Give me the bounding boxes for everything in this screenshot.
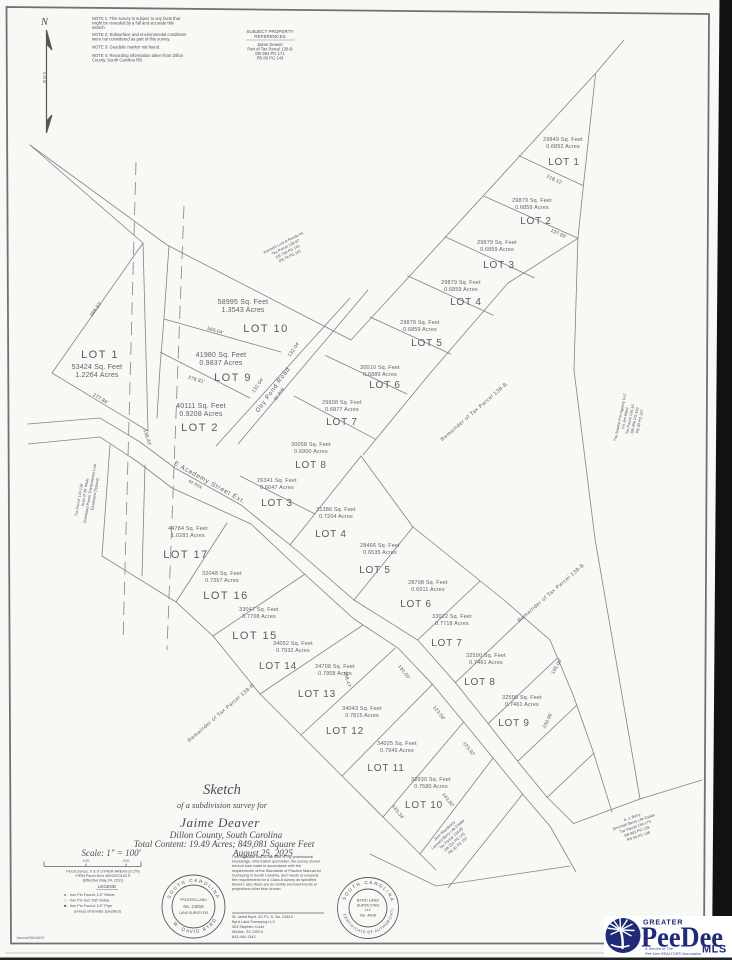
svg-text:33047 Sq. Feet: 33047 Sq. Feet <box>239 607 279 613</box>
svg-text:LOT 17: LOT 17 <box>163 549 209 561</box>
svg-text:LOT 11: LOT 11 <box>367 763 404 774</box>
svg-text:S 05 W: S 05 W <box>42 72 46 84</box>
svg-text:0.6859 Acres: 0.6859 Acres <box>480 247 514 253</box>
svg-text:LOT 4: LOT 4 <box>450 297 482 308</box>
svg-text:0.7718 Acres: 0.7718 Acres <box>435 621 469 627</box>
svg-text:0.6859 Acres: 0.6859 Acres <box>403 327 437 333</box>
svg-text:53424 Sq. Feet: 53424 Sq. Feet <box>72 364 123 371</box>
svg-text:LLC: LLC <box>365 908 372 912</box>
svg-text:30058 Sq. Feet: 30058 Sq. Feet <box>291 442 331 448</box>
svg-text:303 Stephen Court: 303 Stephen Court <box>232 925 265 929</box>
svg-text:LEGEND: LEGEND <box>98 884 116 889</box>
svg-text:0.9837 Acres: 0.9837 Acres <box>199 360 243 367</box>
svg-text:32500 Sq. Feet: 32500 Sq. Feet <box>466 653 506 659</box>
svg-text:200': 200' <box>122 859 129 863</box>
svg-text:29879 Sq. Feet: 29879 Sq. Feet <box>512 198 552 204</box>
svg-text:0.7932 Acres: 0.7932 Acres <box>276 648 310 654</box>
svg-text:0.6900 Acres: 0.6900 Acres <box>294 449 328 455</box>
svg-text:I hereby state that to the bes: I hereby state that to the best of my pr… <box>232 855 313 859</box>
svg-text:0.6611 Acres: 0.6611 Acres <box>411 587 445 593</box>
svg-text:LOT 1: LOT 1 <box>81 349 119 361</box>
svg-text:40111 Sq. Feet: 40111 Sq. Feet <box>176 403 226 410</box>
svg-text:29908 Sq. Feet: 29908 Sq. Feet <box>322 400 362 406</box>
svg-text:28466 Sq. Feet: 28466 Sq. Feet <box>360 543 400 549</box>
svg-text:Pee Dee REALTOR® Association: Pee Dee REALTOR® Association <box>645 952 702 956</box>
svg-text:32048 Sq. Feet: 32048 Sq. Feet <box>202 571 242 577</box>
svg-text:A Service of The: A Service of The <box>644 947 673 951</box>
svg-text:hereon was made in accordance: hereon was made in accordance with the <box>232 864 301 868</box>
svg-text:LOT 3: LOT 3 <box>483 260 515 271</box>
svg-text:■ - Iron Pin Found: 1/2": ■ - Iron Pin Found: 1/2" Pipe <box>64 904 112 908</box>
svg-text:knowledge, information and bel: knowledge, information and belief, the s… <box>232 860 320 864</box>
svg-text:LOT 5: LOT 5 <box>411 338 443 349</box>
svg-text:PROFESS-LAND: PROFESS-LAND <box>180 898 207 902</box>
svg-text:Sketch: Sketch <box>203 782 241 798</box>
svg-text:LOT 13: LOT 13 <box>298 689 336 700</box>
svg-text:LOT 12: LOT 12 <box>326 726 364 737</box>
svg-text:Mullins, SC 29574: Mullins, SC 29574 <box>232 930 263 934</box>
svg-text:30010 Sq. Feet: 30010 Sq. Feet <box>360 365 400 371</box>
svg-text:1.3543 Acres: 1.3543 Acres <box>221 307 265 314</box>
svg-text:LOT 1: LOT 1 <box>548 157 580 168</box>
svg-text:PB 80 PG 143: PB 80 PG 143 <box>257 56 284 61</box>
svg-text:NOTE 3: Geodetic marker not f: NOTE 3: Geodetic marker not found. <box>92 45 160 50</box>
svg-text:0.6852 Acres: 0.6852 Acres <box>546 144 580 150</box>
svg-text:Flood Zones: X & X OTHER AREAS: Flood Zones: X & X OTHER AREAS (0.2%) <box>66 870 140 874</box>
svg-text:Jaime Deaver: Jaime Deaver <box>180 815 260 830</box>
svg-text:LOT 5: LOT 5 <box>359 565 391 576</box>
svg-text:31386 Sq. Feet: 31386 Sq. Feet <box>316 507 356 513</box>
svg-text:of a subdivision survey for: of a subdivision survey for <box>177 800 268 810</box>
svg-text:MLS: MLS <box>702 944 727 956</box>
svg-text:0.6889 Acres: 0.6889 Acres <box>363 372 397 378</box>
svg-text:LOT 6: LOT 6 <box>369 380 401 391</box>
svg-text:29879 Sq. Feet: 29879 Sq. Feet <box>477 240 517 246</box>
svg-text:32930 Sq. Feet: 32930 Sq. Feet <box>411 777 451 783</box>
svg-text:32500 Sq. Feet: 32500 Sq. Feet <box>502 695 542 701</box>
svg-text:29849 Sq. Feet: 29849 Sq. Feet <box>543 137 583 143</box>
svg-text:34708 Sq. Feet: 34708 Sq. Feet <box>315 664 355 670</box>
svg-text:0.6047 Acres: 0.6047 Acres <box>260 485 294 491</box>
svg-text:LOT 10: LOT 10 <box>405 800 443 811</box>
svg-text:the requirements for a Class A: the requirements for a Class A survey as… <box>232 878 316 882</box>
svg-text:28798 Sq. Feet: 28798 Sq. Feet <box>408 580 448 586</box>
svg-text:Byrd Land Surveying LLC: Byrd Land Surveying LLC <box>232 920 276 924</box>
svg-text:0.7461 Acres: 0.7461 Acres <box>469 660 503 666</box>
svg-text:0.6535 Acres: 0.6535 Acres <box>363 550 397 556</box>
svg-text:LOT 3: LOT 3 <box>261 498 293 509</box>
svg-text:34043 Sq. Feet: 34043 Sq. Feet <box>342 706 382 712</box>
svg-text:LOT 9: LOT 9 <box>214 372 252 384</box>
svg-text:LOT 8: LOT 8 <box>295 460 327 471</box>
svg-text:34052 Sq. Feet: 34052 Sq. Feet <box>273 641 313 647</box>
svg-text:41980 Sq. Feet: 41980 Sq. Feet <box>196 352 247 359</box>
svg-text:34025 Sq. Feet: 34025 Sq. Feet <box>377 741 417 747</box>
svg-text:were not considered as part of: were not considered as part of this surv… <box>92 37 170 42</box>
svg-text:LOT 6: LOT 6 <box>400 599 432 610</box>
svg-text:REFERENCES: REFERENCES <box>254 34 285 39</box>
svg-text:0.7461 Acres: 0.7461 Acres <box>505 702 539 708</box>
svg-text:LOT 14: LOT 14 <box>259 661 297 672</box>
svg-text:0.7708 Acres: 0.7708 Acres <box>242 614 276 620</box>
svg-text:● - Iron Pin Found: 1/2": ● - Iron Pin Found: 1/2" Rebar <box>64 893 115 897</box>
svg-text:therein; also there are no vis: therein; also there are no visible encro… <box>232 883 318 887</box>
svg-text:requirements of the Standards: requirements of the Standards of Practic… <box>232 869 322 873</box>
svg-text:LOT 9: LOT 9 <box>498 718 530 729</box>
svg-text:search.: search. <box>92 25 106 30</box>
svg-text:LOT 10: LOT 10 <box>243 323 289 335</box>
svg-text:58995 Sq. Feet: 58995 Sq. Feet <box>218 299 269 306</box>
svg-text:33022 Sq. Feet: 33022 Sq. Feet <box>432 614 472 620</box>
svg-text:LOT 4: LOT 4 <box>315 529 347 540</box>
svg-text:Jasonw2981#625: Jasonw2981#625 <box>16 936 44 940</box>
svg-text:0.7357 Acres: 0.7357 Acres <box>205 578 239 584</box>
svg-text:FIRM Panel No's 45033C0150 E: FIRM Panel No's 45033C0150 E <box>76 874 131 878</box>
svg-text:○ - Iron Pin Set: 5/8" Re: ○ - Iron Pin Set: 5/8" Rebar <box>64 899 110 903</box>
svg-text:26341 Sq. Feet: 26341 Sq. Feet <box>257 478 297 484</box>
svg-text:843-464-1342: 843-464-1342 <box>232 935 256 939</box>
svg-text:LOT 7: LOT 7 <box>431 638 463 649</box>
svg-text:LOT 2: LOT 2 <box>181 422 219 434</box>
svg-text:Scale: 1" = 100': Scale: 1" = 100' <box>81 848 141 858</box>
svg-text:0.6859 Acres: 0.6859 Acres <box>444 287 478 293</box>
svg-text:No. 21819: No. 21819 <box>183 904 204 909</box>
svg-text:LOT 16: LOT 16 <box>203 590 249 602</box>
svg-text:0.7815 Acres: 0.7815 Acres <box>345 713 379 719</box>
svg-text:0.7580 Acres: 0.7580 Acres <box>414 784 448 790</box>
svg-text:Surveying in South Carolina, a: Surveying in South Carolina, and meets o… <box>232 873 319 877</box>
svg-text:County, South Carolina RB.: County, South Carolina RB. <box>92 58 143 63</box>
svg-text:1.2264 Acres: 1.2264 Acres <box>75 372 119 379</box>
svg-text:(Effective May 24, 2011): (Effective May 24, 2011) <box>83 879 125 883</box>
svg-text:0.9208 Acres: 0.9208 Acres <box>179 411 223 418</box>
svg-text:100': 100' <box>82 859 89 863</box>
svg-text:LAND SURVEYOR: LAND SURVEYOR <box>179 911 209 915</box>
svg-text:N: N <box>40 17 49 28</box>
svg-text:0.7949 Acres: 0.7949 Acres <box>380 748 414 754</box>
svg-text:SURVEYING: SURVEYING <box>357 903 380 908</box>
svg-text:LOT 8: LOT 8 <box>464 677 496 688</box>
svg-text:0.6877 Acres: 0.6877 Acres <box>325 407 359 413</box>
svg-text:0.7204 Acres: 0.7204 Acres <box>319 514 353 520</box>
svg-text:projections other than shown.: projections other than shown. <box>232 887 282 891</box>
svg-text:LOT 2: LOT 2 <box>520 216 552 227</box>
svg-text:LOT 15: LOT 15 <box>232 630 278 642</box>
svg-text:44784 Sq. Feet: 44784 Sq. Feet <box>168 526 208 532</box>
svg-text:29879 Sq. Feet: 29879 Sq. Feet <box>441 280 481 286</box>
svg-text:No. 4808: No. 4808 <box>360 913 376 918</box>
svg-text:LOT 7: LOT 7 <box>326 417 358 428</box>
svg-text:W. Jared Byrd, SC P.L.S. No. 2: W. Jared Byrd, SC P.L.S. No. 21819 <box>232 915 293 919</box>
svg-text:(unless otherwise specified): (unless otherwise specified) <box>74 910 122 914</box>
svg-text:0.6859 Acres: 0.6859 Acres <box>515 205 549 211</box>
svg-text:29879 Sq. Feet: 29879 Sq. Feet <box>400 320 440 326</box>
svg-text:1.0281 Acres: 1.0281 Acres <box>171 533 205 539</box>
